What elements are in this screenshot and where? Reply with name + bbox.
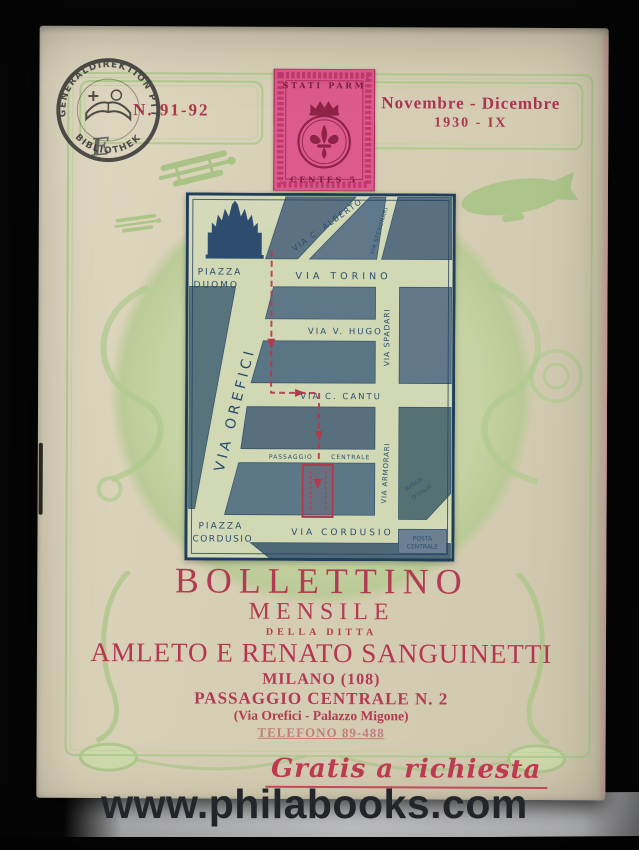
map-label-posta-1: POSTA <box>413 535 433 542</box>
philabooks-watermark: www.philabooks.com <box>0 781 629 828</box>
issue-number: N. 91-92 <box>81 100 261 121</box>
title-bollettino: BOLLETTINO <box>37 559 606 603</box>
photo-bottom-black-band <box>0 837 639 850</box>
map-label-piazza-duomo-2: DUOMO <box>194 280 239 290</box>
photo-of-bulletin-cover: N. 91-92 Novembre - Dicembre 1930 - IX E… <box>0 0 639 850</box>
company-name: AMLETO E RENATO SANGUINETTI <box>37 637 606 670</box>
map-label-via-v-hugo: VIA V. HUGO <box>308 327 383 337</box>
date-months: Novembre - Dicembre <box>360 93 581 114</box>
map-label-via-cordusio: VIA CORDUSIO <box>291 528 393 538</box>
stamp-bottom-label: CENTES 5 <box>290 174 357 184</box>
shop-location-marker <box>303 465 333 517</box>
date-year: 1930 - IX <box>360 115 581 132</box>
map-label-piazza-duomo-1: PIAZZA <box>198 267 243 277</box>
map-label-passaggio-1: PASSAGGIO <box>269 454 313 461</box>
map-label-via-spadari: VIA SPADARI <box>382 308 391 366</box>
milan-street-map: PIAZZA DUOMO VIA C. ALBERTO VIA SPERONAR… <box>184 192 456 561</box>
map-label-posta-2: CENTRALE <box>407 543 439 550</box>
bulletin-cover: N. 91-92 Novembre - Dicembre 1930 - IX E… <box>36 26 608 800</box>
map-label-piazza-cordusio-2: CORDUSIO <box>192 534 253 544</box>
stamp-top-label: STATI PARM <box>283 80 367 90</box>
map-label-via-c-cantu: VIA C. CANTU <box>300 392 382 402</box>
map-label-passaggio-2: CENTRALE <box>331 454 370 461</box>
title-mensile: MENSILE <box>37 598 606 627</box>
staple <box>39 443 43 515</box>
page-edge-tint <box>600 36 608 794</box>
parma-postage-stamp: STATI PARM CENTES 5 <box>273 69 376 191</box>
handwritten-mark: E <box>90 131 111 162</box>
date-box: Novembre - Dicembre 1930 - IX <box>358 81 583 150</box>
company-phone: TELEFONO 89-488 <box>37 724 606 742</box>
map-label-piazza-cordusio-1: PIAZZA <box>198 521 243 531</box>
company-address-detail: (Via Orefici - Palazzo Migone) <box>37 707 606 725</box>
map-label-via-torino: VIA TORINO <box>296 271 392 282</box>
